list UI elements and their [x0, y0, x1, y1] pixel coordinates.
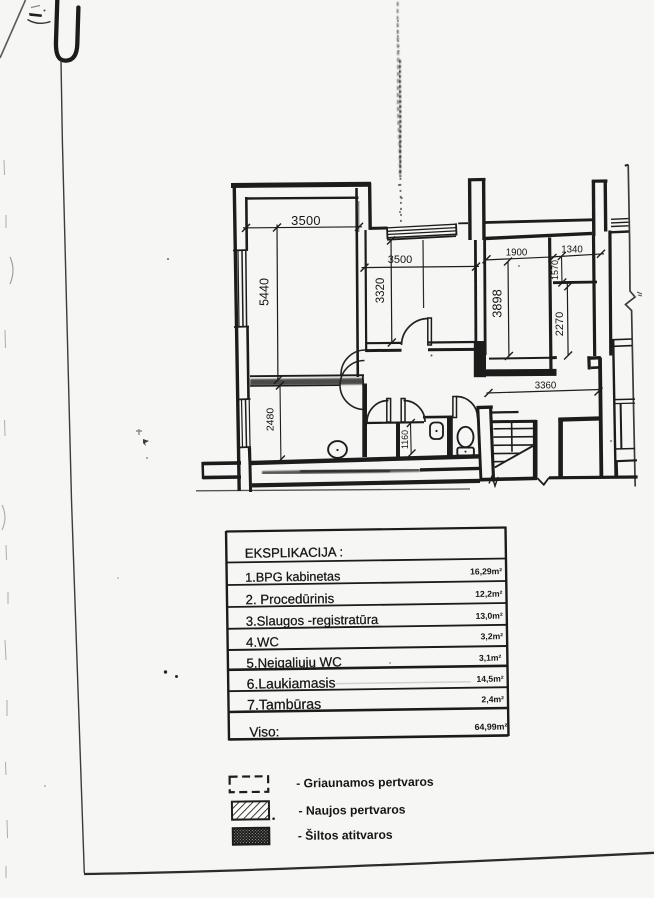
svg-text:14,5m²: 14,5m²: [476, 674, 504, 684]
svg-text:2,4m²: 2,4m²: [481, 694, 504, 704]
svg-text:Viso:: Viso:: [249, 724, 279, 739]
svg-text:5.Neįgaliųjų WC: 5.Neįgaliųjų WC: [246, 654, 342, 670]
svg-text:1.BPG kabinetas: 1.BPG kabinetas: [245, 569, 340, 584]
svg-text:2270: 2270: [554, 312, 566, 336]
svg-text:- Naujos pertvaros: - Naujos pertvaros: [298, 803, 405, 818]
svg-text:1160: 1160: [400, 430, 410, 449]
svg-text:16,29m²: 16,29m²: [470, 566, 502, 576]
svg-text:3500: 3500: [388, 254, 412, 266]
svg-text:3.Slaugos -registratūra: 3.Slaugos -registratūra: [246, 612, 379, 629]
svg-text:- Griaunamos pertvaros: - Griaunamos pertvaros: [296, 775, 434, 791]
svg-text:EKSPLIKACIJA :: EKSPLIKACIJA :: [245, 544, 343, 560]
svg-text:- Šiltos atitvaros: - Šiltos atitvaros: [298, 827, 393, 843]
svg-text:3360: 3360: [535, 381, 557, 392]
svg-text:12,2m²: 12,2m²: [475, 589, 503, 599]
svg-text:1570: 1570: [550, 260, 560, 280]
svg-text:3,1m²: 3,1m²: [479, 653, 502, 663]
svg-text:3898: 3898: [490, 289, 505, 317]
svg-text:6.Laukiamasis: 6.Laukiamasis: [247, 674, 336, 691]
svg-text:1900: 1900: [506, 248, 528, 259]
svg-text:3500: 3500: [291, 213, 321, 228]
svg-text:7.Tambūras: 7.Tambūras: [247, 697, 321, 714]
svg-text:3320: 3320: [375, 278, 387, 304]
svg-text:2480: 2480: [265, 408, 277, 432]
svg-text:5440: 5440: [258, 278, 272, 306]
svg-text:64,99m²: 64,99m²: [475, 722, 508, 732]
svg-text:1340: 1340: [561, 245, 583, 256]
svg-text:13,0m²: 13,0m²: [475, 611, 503, 621]
svg-text:3,2m²: 3,2m²: [481, 631, 504, 641]
svg-text:2. Procedūrinis: 2. Procedūrinis: [245, 591, 334, 607]
svg-text:4.WC: 4.WC: [246, 634, 279, 649]
